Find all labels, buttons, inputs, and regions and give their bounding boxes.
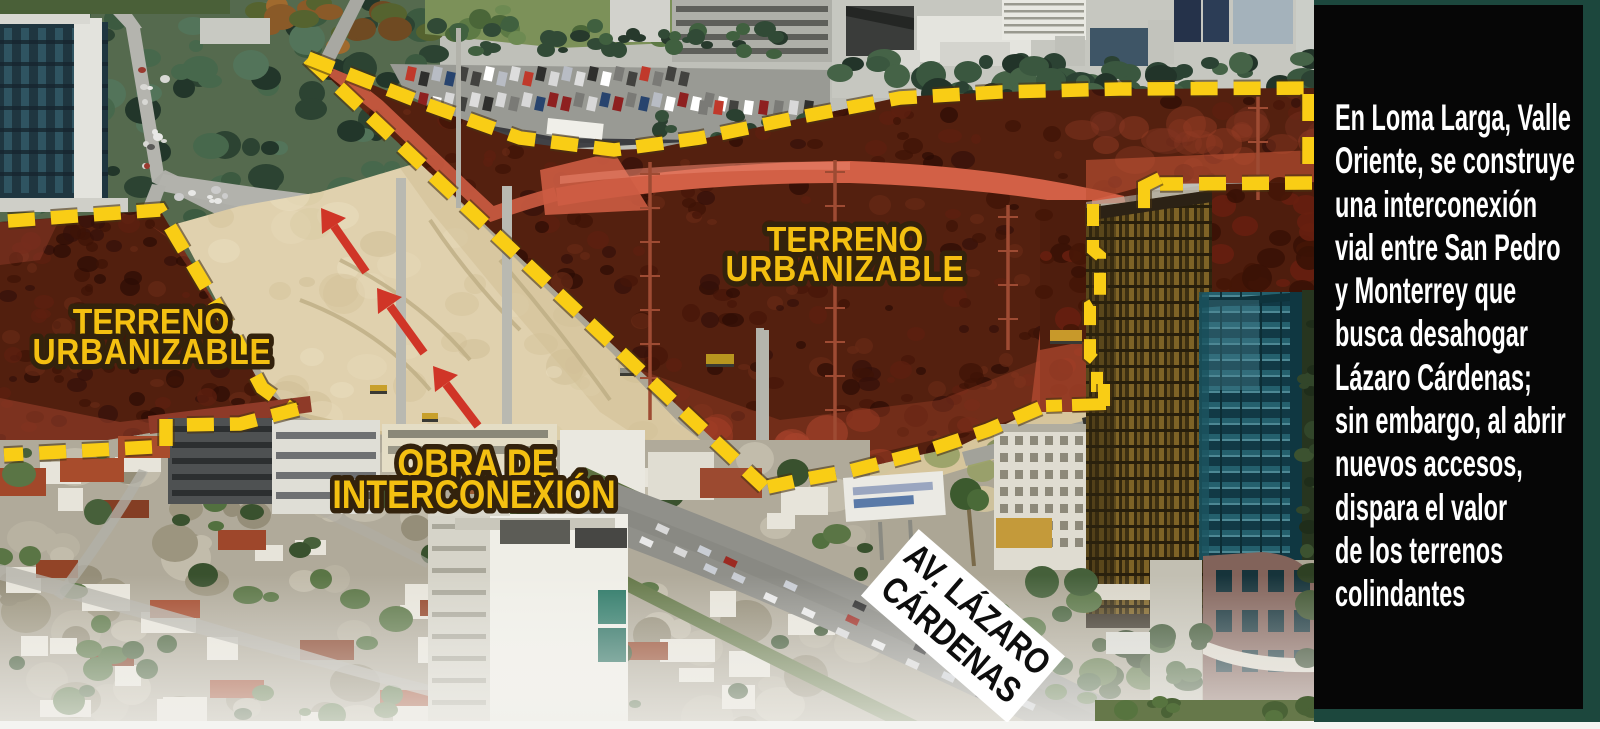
svg-text:URBANIZABLE: URBANIZABLE — [32, 332, 271, 372]
svg-text:INTERCONEXIÓN: INTERCONEXIÓN — [332, 471, 615, 516]
svg-text:URBANIZABLE: URBANIZABLE — [725, 249, 964, 289]
